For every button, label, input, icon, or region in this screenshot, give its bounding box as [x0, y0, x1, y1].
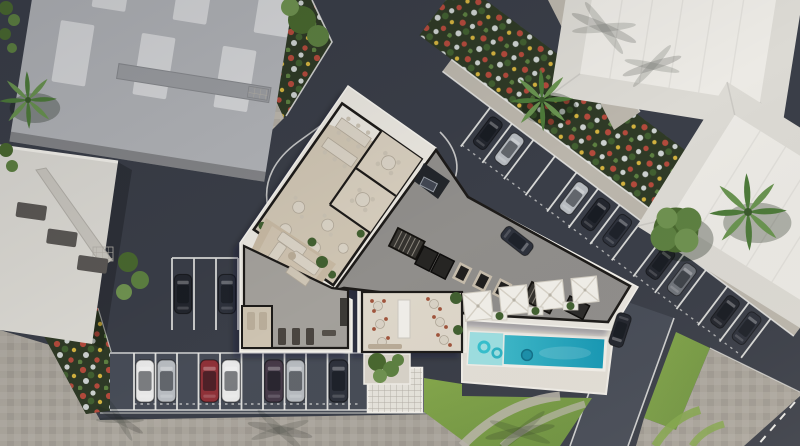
- car: [265, 360, 284, 402]
- car: [174, 274, 191, 313]
- south-parking-row: [110, 352, 372, 412]
- car: [136, 360, 155, 402]
- bench-seat: [368, 344, 402, 349]
- spa-bed: [247, 312, 255, 330]
- car: [157, 360, 176, 402]
- car: [200, 360, 219, 402]
- umbrella: [463, 291, 494, 322]
- terrace-planter: [364, 353, 410, 384]
- plant: [453, 325, 463, 335]
- site-plan-render: [0, 0, 800, 446]
- car: [329, 360, 348, 402]
- aerial-render-canvas: [0, 0, 800, 446]
- pool-float: [522, 350, 533, 361]
- car: [222, 360, 241, 402]
- dining-room: [362, 292, 463, 352]
- bench: [322, 330, 336, 336]
- plant: [308, 238, 317, 247]
- umbrella: [535, 280, 566, 311]
- plant: [450, 292, 462, 304]
- kitchen-counter: [398, 300, 410, 338]
- car: [286, 360, 305, 402]
- umbrella: [571, 276, 599, 304]
- pool: [468, 332, 606, 370]
- spa-bed: [259, 312, 267, 330]
- treadmills: [278, 328, 314, 345]
- coffee-table: [288, 252, 296, 260]
- plant: [316, 256, 328, 268]
- umbrella: [499, 285, 530, 316]
- equipment-rack: [340, 298, 347, 326]
- spa-room: [242, 306, 272, 348]
